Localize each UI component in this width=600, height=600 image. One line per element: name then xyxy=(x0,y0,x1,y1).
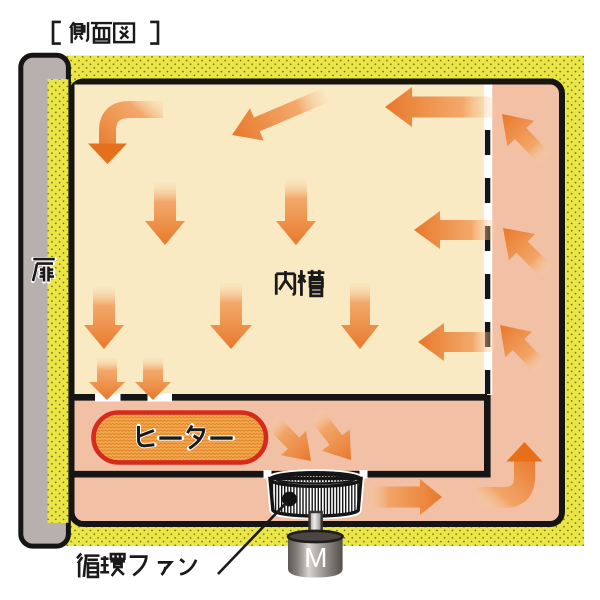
svg-text:M: M xyxy=(304,542,327,573)
